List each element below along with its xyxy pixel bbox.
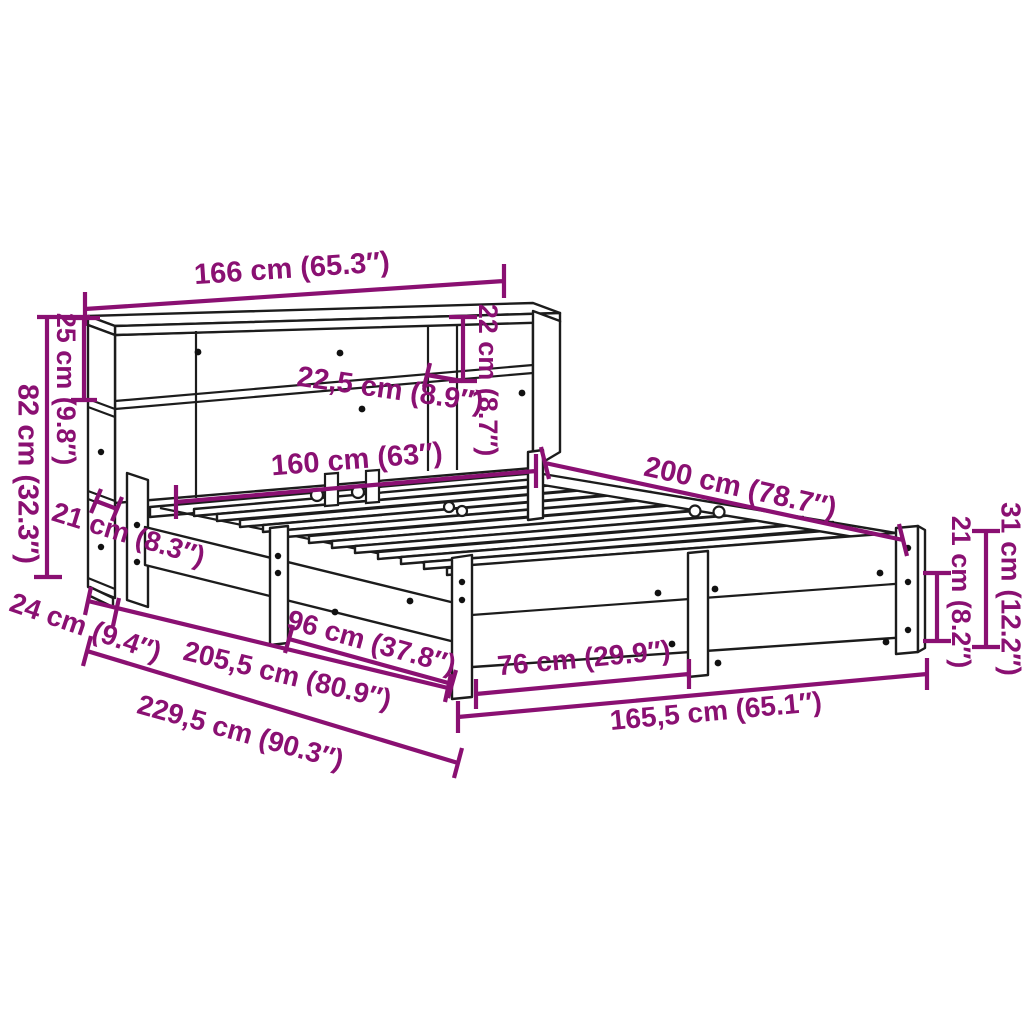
dimension-label-upper-shelf-height: 25 cm (9.8″)	[51, 313, 81, 466]
dimension-label-underbed-height: 21 cm (8.2″)	[946, 516, 976, 669]
leg-foot-right-side	[918, 526, 925, 652]
leg-foot-center	[688, 551, 708, 677]
dimension-label-headboard-width: 166 cm (65.3″)	[193, 246, 391, 291]
dimension-frame-height: 31 cm (12.2″)	[972, 502, 1024, 676]
dimension-underbed-height: 21 cm (8.2″)	[923, 516, 976, 669]
bookcase-bed-dimension-diagram: 166 cm (65.3″) 25 cm (9.8″) 82 cm (32.3″…	[0, 0, 1024, 1024]
dimension-label-shelf-opening-height: 22 cm (8.7″)	[473, 304, 503, 457]
headboard-right-panel	[533, 311, 560, 468]
dimension-label-total-length: 229,5 cm (90.3″)	[134, 689, 347, 776]
dimension-label-frame-height: 31 cm (12.2″)	[996, 502, 1024, 676]
headboard-left-panel	[88, 325, 115, 598]
dimension-label-headboard-height: 82 cm (32.3″)	[11, 384, 43, 564]
dimension-diagram-page: 166 cm (65.3″) 25 cm (9.8″) 82 cm (32.3″…	[0, 0, 1024, 1024]
